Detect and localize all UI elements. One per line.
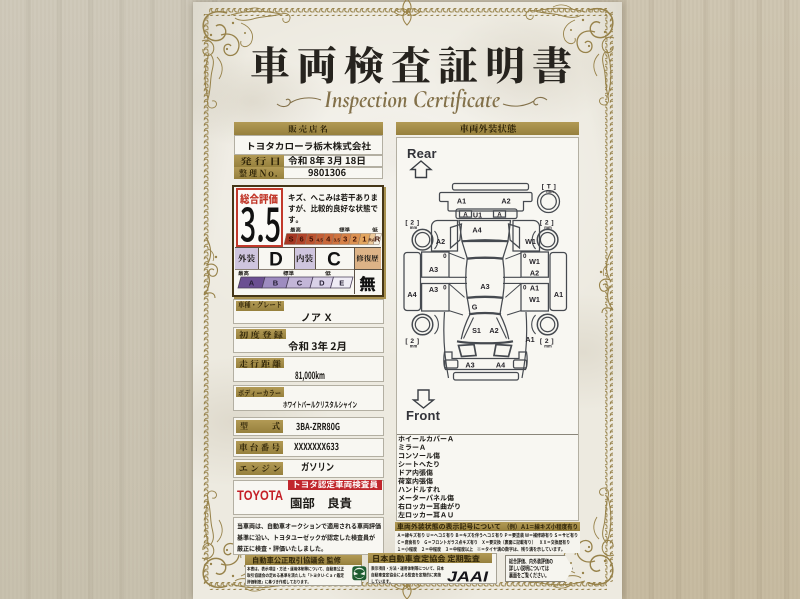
svg-text:A1: A1 (530, 284, 539, 293)
svg-text:JAAI: JAAI (447, 569, 489, 586)
svg-text:A4: A4 (407, 290, 416, 299)
svg-text:A3: A3 (429, 265, 438, 274)
svg-text:0: 0 (443, 284, 447, 291)
svg-text:W1: W1 (529, 257, 540, 266)
svg-text:A1: A1 (457, 197, 466, 206)
svg-text:A3: A3 (465, 361, 474, 370)
svg-text:D: D (269, 250, 283, 271)
svg-text:A1: A1 (525, 335, 534, 344)
svg-text:A2: A2 (501, 197, 510, 206)
svg-text:A2: A2 (530, 269, 539, 278)
svg-text:G: G (472, 303, 478, 312)
svg-text:mm: mm (410, 225, 418, 230)
svg-text:A2: A2 (489, 326, 498, 335)
svg-text:A4: A4 (496, 361, 505, 370)
svg-text:TOYOTA: TOYOTA (237, 488, 283, 503)
svg-text:0: 0 (443, 253, 447, 260)
svg-text:W1: W1 (525, 237, 536, 246)
svg-text:R: R (375, 235, 381, 244)
svg-text:C: C (297, 279, 303, 288)
svg-text:C: C (327, 250, 341, 271)
svg-text:2: 2 (353, 235, 357, 244)
svg-text:0: 0 (523, 253, 527, 260)
svg-text:6: 6 (299, 235, 303, 244)
svg-text:A: A (497, 211, 502, 218)
svg-text:mm: mm (544, 344, 552, 349)
svg-text:mm: mm (544, 225, 552, 230)
svg-text:A1: A1 (554, 290, 563, 299)
svg-text:4.5: 4.5 (317, 238, 324, 243)
svg-text:E: E (339, 279, 344, 288)
svg-text:mm: mm (546, 189, 554, 194)
svg-text:A: A (249, 279, 255, 288)
svg-text:A2: A2 (436, 237, 445, 246)
svg-text:U1: U1 (473, 210, 482, 219)
svg-text:Rear: Rear (407, 146, 437, 161)
svg-text:A: A (463, 211, 468, 218)
svg-text:Front: Front (406, 408, 441, 423)
svg-text:3.5: 3.5 (334, 238, 341, 243)
svg-text:A3: A3 (429, 285, 438, 294)
svg-text:W1: W1 (529, 295, 540, 304)
svg-text:0: 0 (523, 284, 527, 291)
svg-text:mm: mm (410, 344, 418, 349)
svg-text:S1: S1 (472, 326, 481, 335)
svg-text:D: D (319, 279, 325, 288)
svg-text:A3: A3 (480, 282, 489, 291)
svg-text:S: S (289, 235, 294, 244)
svg-text:B: B (273, 279, 279, 288)
svg-text:A4: A4 (472, 226, 481, 235)
svg-text:3: 3 (343, 235, 347, 244)
